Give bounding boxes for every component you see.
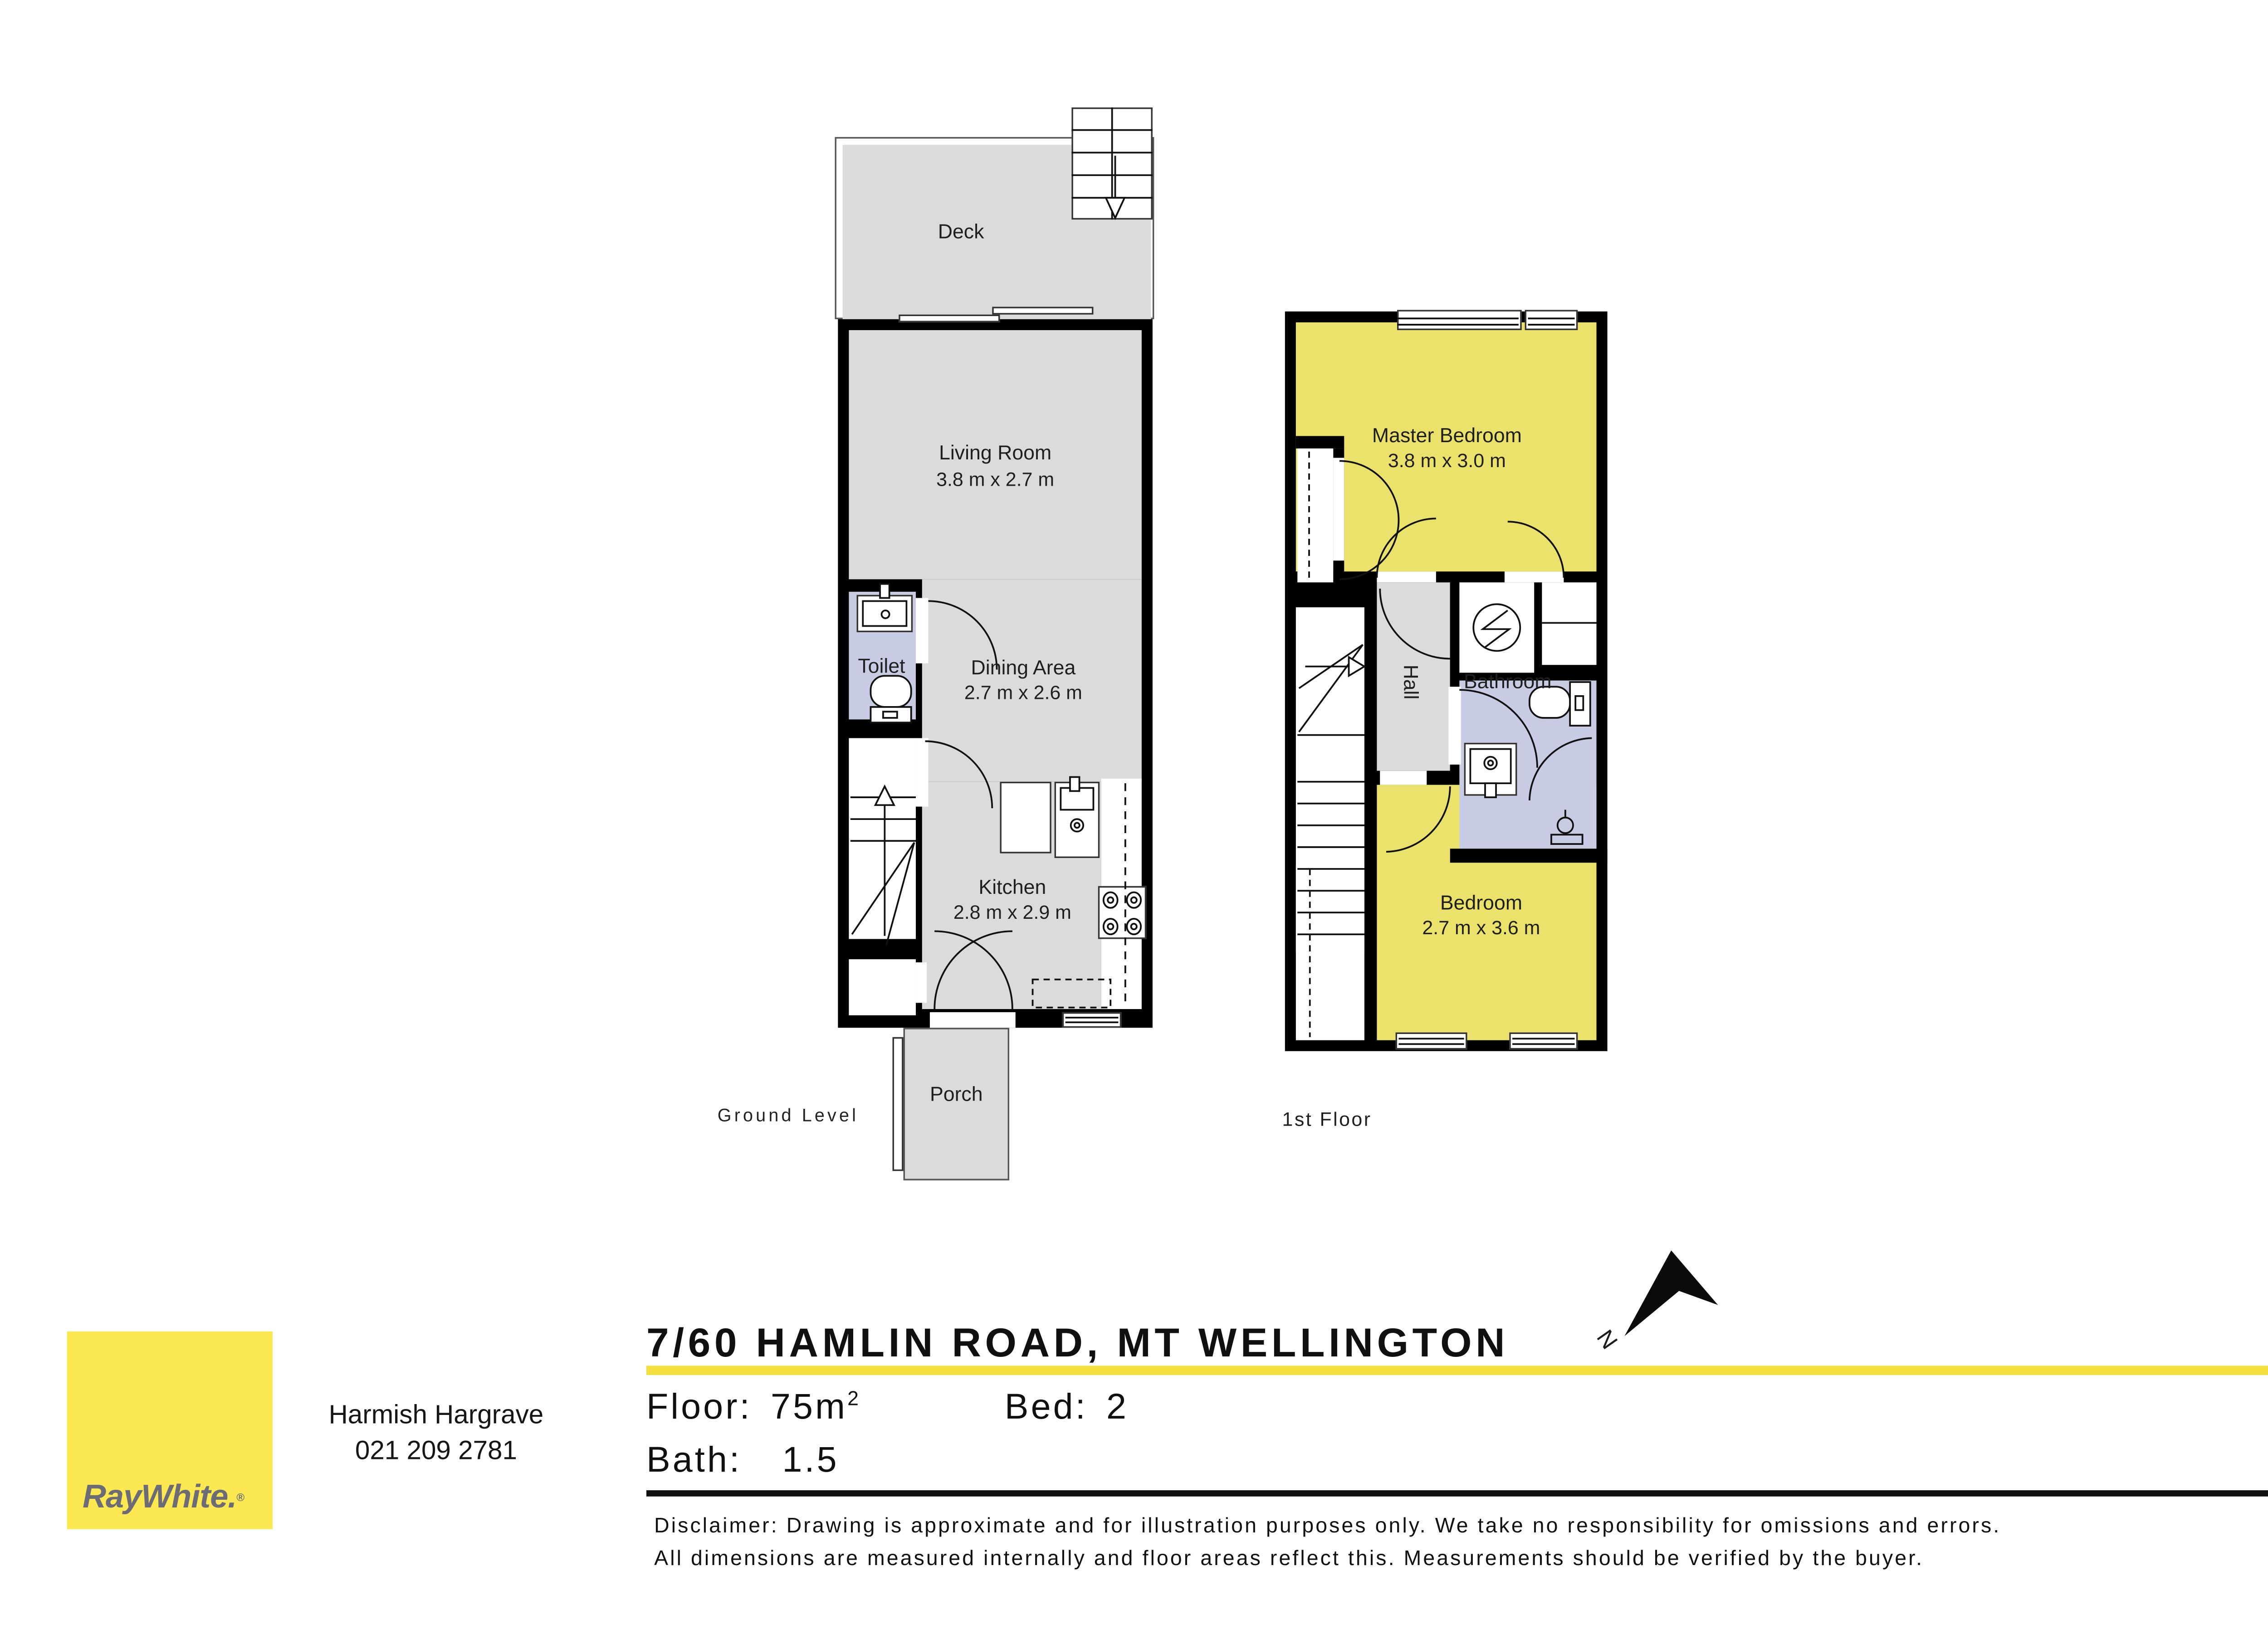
kitchen-label: Kitchen <box>978 875 1046 899</box>
bedroom-wardrobe <box>1296 866 1364 1040</box>
toilet-sink <box>857 595 913 632</box>
agent-phone: 021 209 2781 <box>249 1433 623 1468</box>
bedroom-dims: 2.7 m x 3.6 m <box>1422 917 1540 939</box>
kitchen-dims: 2.8 m x 2.9 m <box>953 902 1071 923</box>
master-window <box>1397 310 1522 330</box>
kitchen-counter <box>1000 782 1051 854</box>
raywhite-logo: RayWhite.® <box>67 1331 273 1529</box>
porch-label: Porch <box>930 1082 983 1106</box>
bedroom-label: Bedroom <box>1440 891 1522 914</box>
hwc-cupboard <box>1459 582 1534 673</box>
kitchen-window <box>1062 1012 1121 1028</box>
footer-divider <box>646 1490 2268 1497</box>
kitchen-sink-unit <box>1055 782 1100 858</box>
closet-door-gap <box>1333 458 1344 561</box>
dining-area-dims: 2.7 m x 2.6 m <box>964 682 1082 704</box>
deck-stairs <box>1071 107 1153 219</box>
sliding-door-panel <box>899 315 1000 322</box>
master-closet <box>1297 449 1333 582</box>
dining-area-label: Dining Area <box>971 656 1076 679</box>
bedroom-door-gap <box>1380 771 1427 785</box>
property-address: 7/60 HAMLIN ROAD, MT WELLINGTON <box>646 1319 1509 1367</box>
deck-label: Deck <box>938 219 984 243</box>
porch-door-gap <box>930 1012 1016 1028</box>
stat-floor: Floor:75m2 <box>646 1386 861 1428</box>
north-arrow-icon <box>1624 1250 1718 1336</box>
bathroom-door-gap <box>1448 687 1461 765</box>
linen-cupboard <box>1542 582 1596 665</box>
north-label: N <box>1591 1326 1622 1355</box>
bathroom-sink <box>1464 743 1517 796</box>
toilet-label: Toilet <box>858 654 905 678</box>
ground-stairs <box>849 738 916 939</box>
floorplan-sheet: Deck Living Room 3.8 m x 2.7 m Toilet Di… <box>0 0 2268 1628</box>
dining-area-floor <box>922 579 1142 781</box>
bedroom-window <box>1396 1033 1467 1050</box>
hall-door-gap <box>916 738 928 807</box>
stove <box>1098 886 1146 939</box>
toilet-door-gap <box>916 598 928 663</box>
porch-rail <box>893 1037 904 1171</box>
living-room-label: Living Room <box>939 441 1051 464</box>
agent-name: Harmish Hargrave <box>249 1397 623 1433</box>
bathroom-bottom-wall <box>1450 849 1608 863</box>
sliding-door-panel <box>992 307 1093 314</box>
disclaimer-line-2: All dimensions are measured internally a… <box>654 1546 1924 1570</box>
ground-level-label: Ground Level <box>718 1107 859 1126</box>
understairs-closet <box>849 959 916 1015</box>
stat-bath: Bath:1.5 <box>646 1439 839 1481</box>
first-floor-label: 1st Floor <box>1282 1109 1372 1131</box>
bathroom-label: Bathroom <box>1464 669 1552 693</box>
master-door-gap <box>1505 571 1564 582</box>
hall-label: Hall <box>1399 664 1423 699</box>
master-door-gap <box>1377 571 1436 582</box>
closet-wall <box>1296 436 1344 448</box>
raywhite-wordmark: RayWhite.® <box>83 1479 244 1517</box>
closet-door-leaf <box>916 962 927 1003</box>
disclaimer-line-1: Disclaimer: Drawing is approximate and f… <box>654 1514 2001 1537</box>
address-underline <box>646 1366 2268 1375</box>
agent-block: Harmish Hargrave 021 209 2781 <box>249 1397 623 1468</box>
living-room-dims: 3.8 m x 2.7 m <box>936 469 1054 491</box>
bedroom-window <box>1509 1033 1578 1050</box>
master-bedroom-dims: 3.8 m x 3.0 m <box>1388 450 1506 472</box>
stat-bed: Bed:2 <box>1005 1386 1129 1428</box>
master-bedroom-label: Master Bedroom <box>1372 424 1522 447</box>
master-window <box>1525 310 1578 330</box>
